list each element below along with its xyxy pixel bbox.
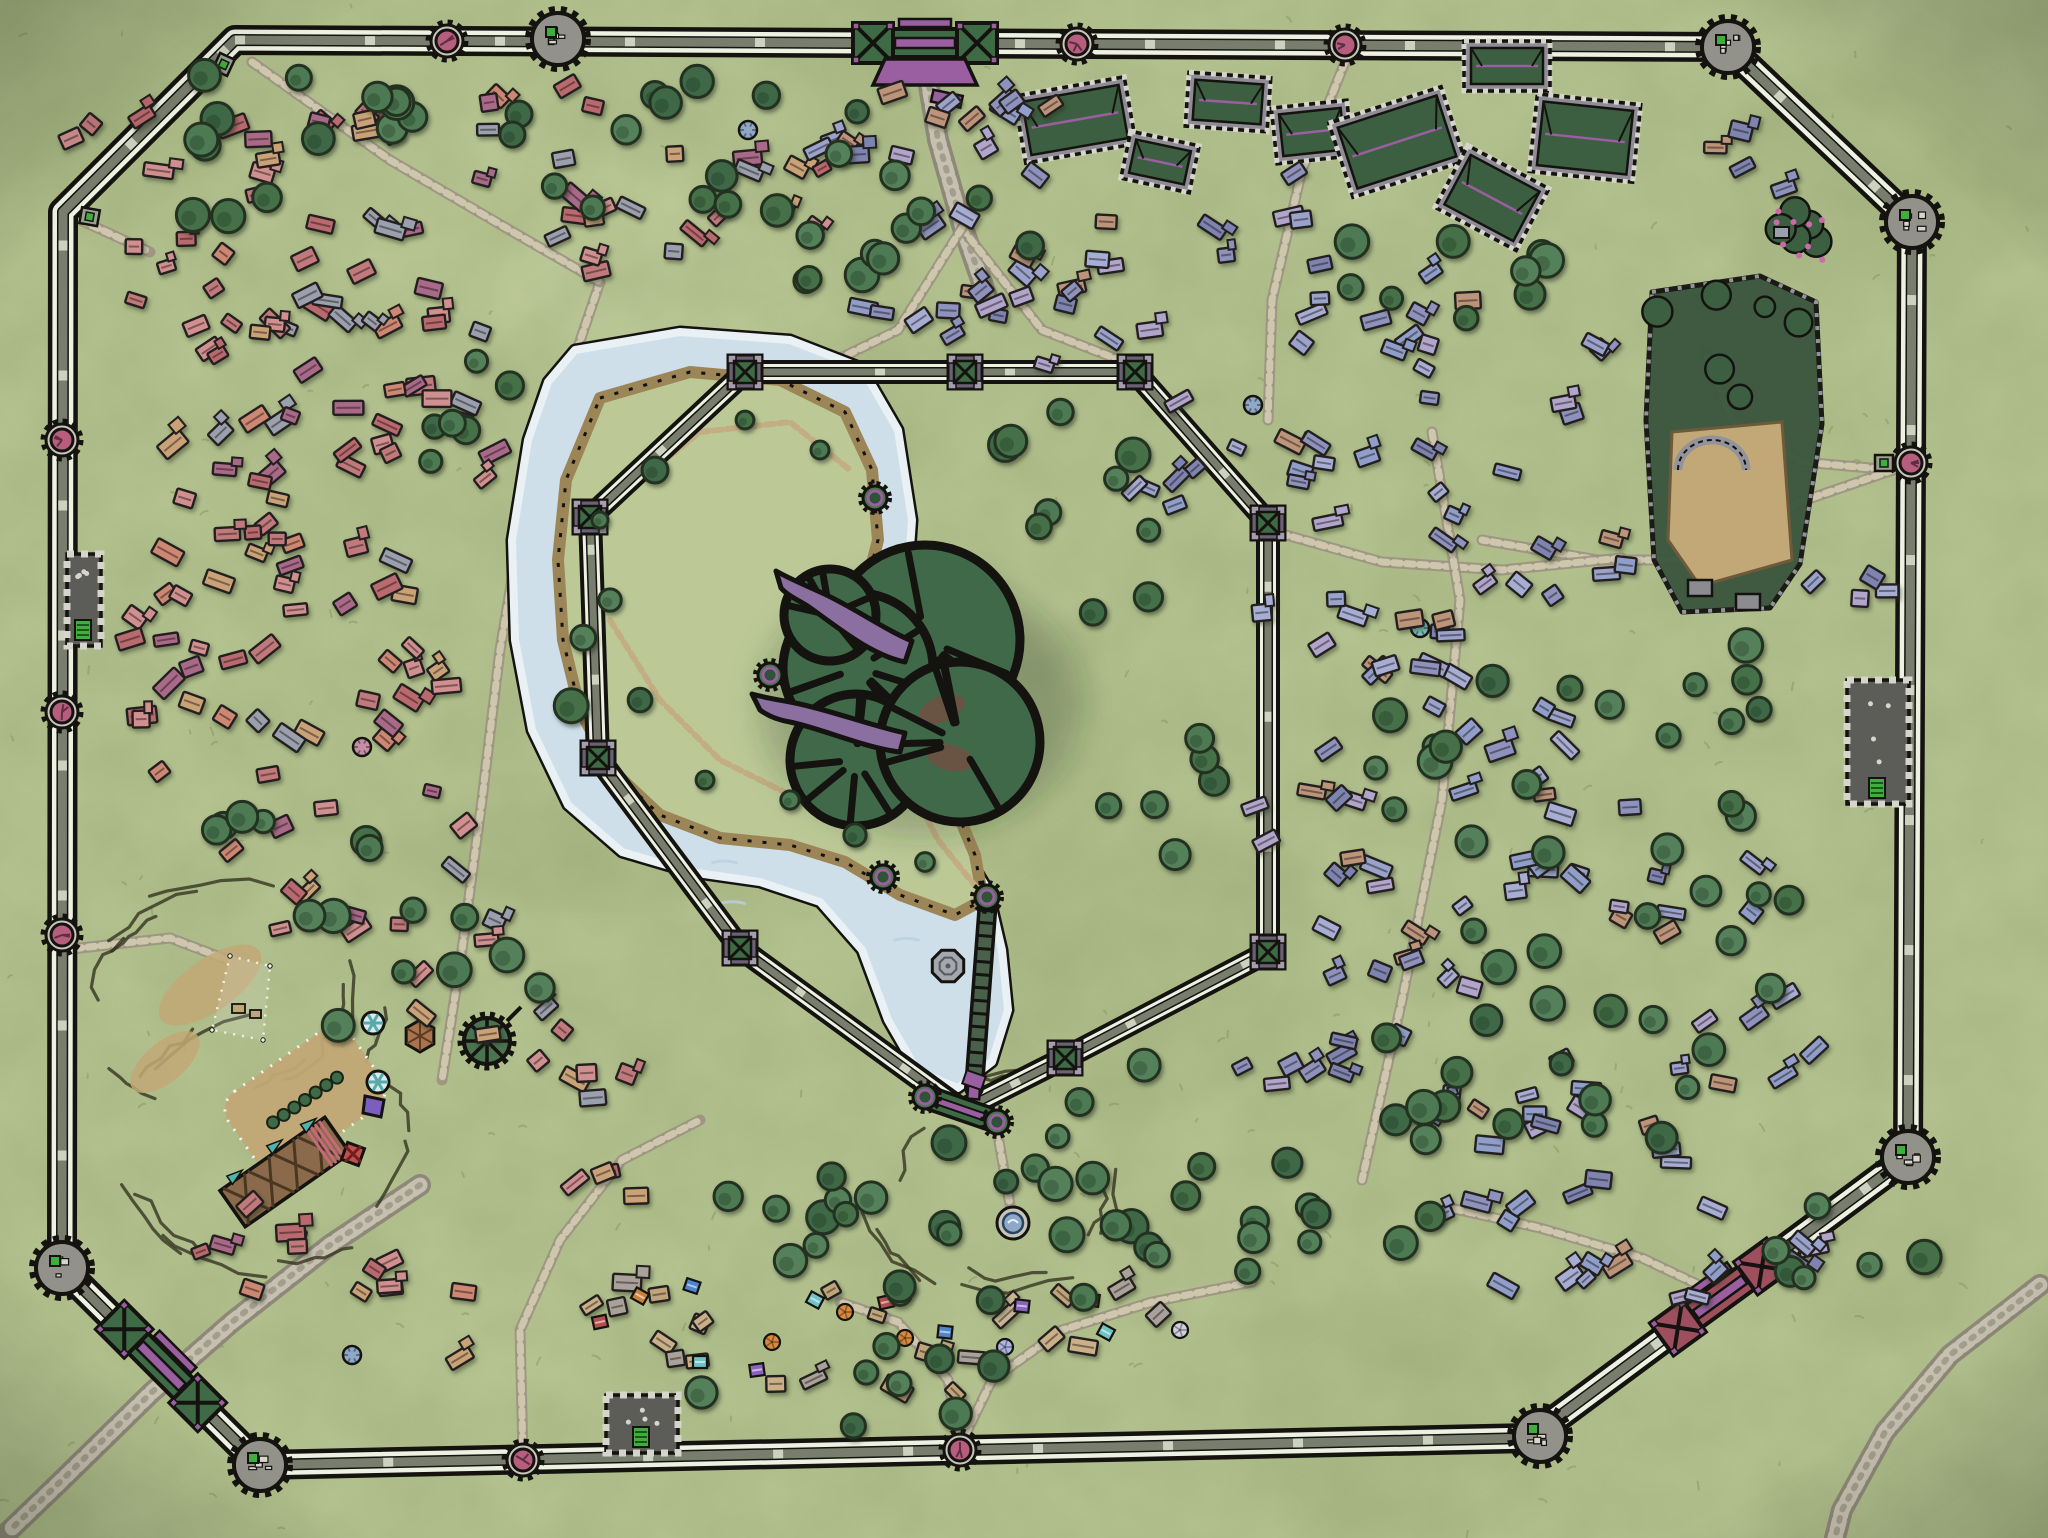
vignette <box>0 0 2048 1538</box>
city-map-canvas <box>0 0 2048 1538</box>
walled-city-map <box>0 0 2048 1538</box>
